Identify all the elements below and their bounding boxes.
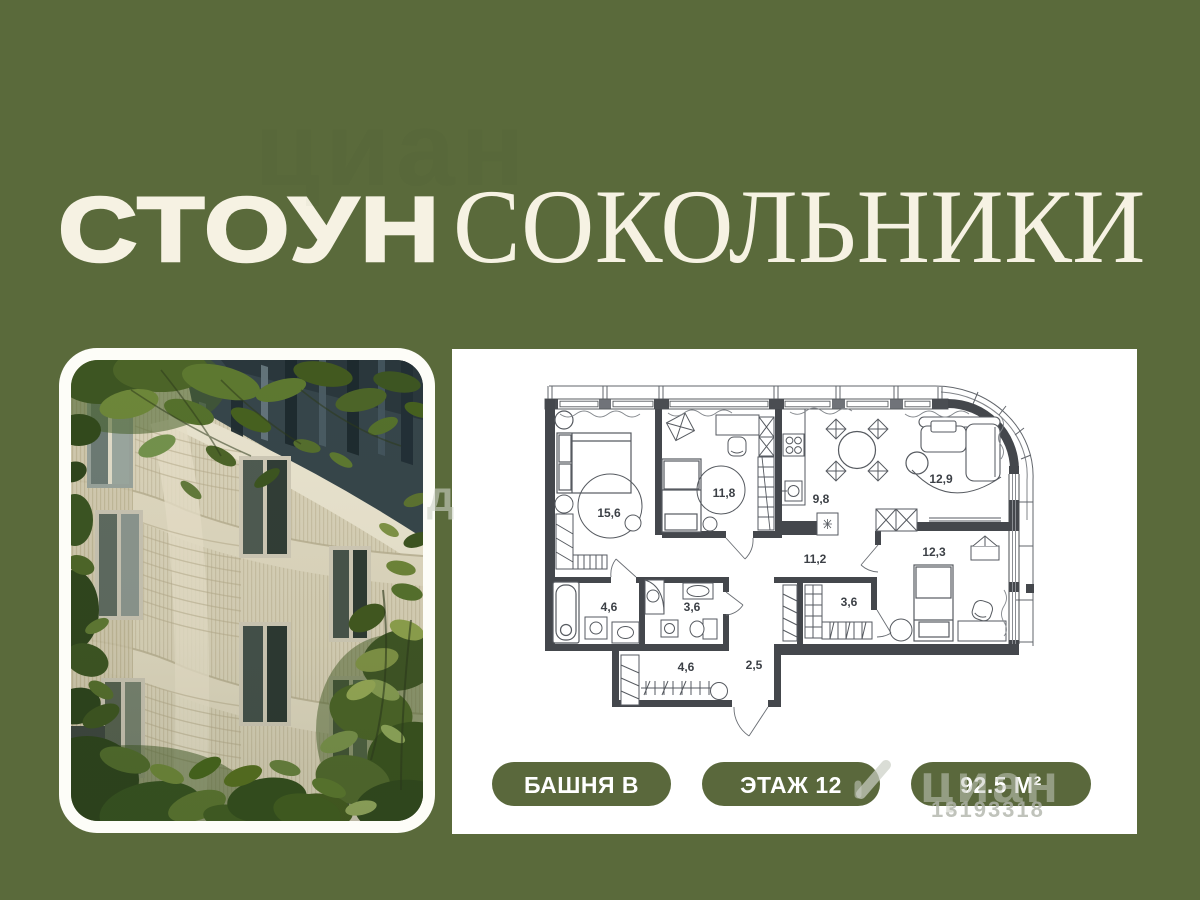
svg-text:11,2: 11,2 xyxy=(804,552,827,566)
svg-text:3,6: 3,6 xyxy=(684,600,701,614)
svg-text:12,3: 12,3 xyxy=(922,545,946,559)
svg-text:12,9: 12,9 xyxy=(929,472,953,486)
svg-text:3,6: 3,6 xyxy=(841,595,858,609)
svg-text:4,6: 4,6 xyxy=(678,660,695,674)
svg-text:11,8: 11,8 xyxy=(713,486,736,500)
svg-text:15,6: 15,6 xyxy=(597,506,621,520)
svg-text:4,6: 4,6 xyxy=(601,600,618,614)
svg-text:2,5: 2,5 xyxy=(746,658,763,672)
svg-text:9,8: 9,8 xyxy=(813,492,830,506)
